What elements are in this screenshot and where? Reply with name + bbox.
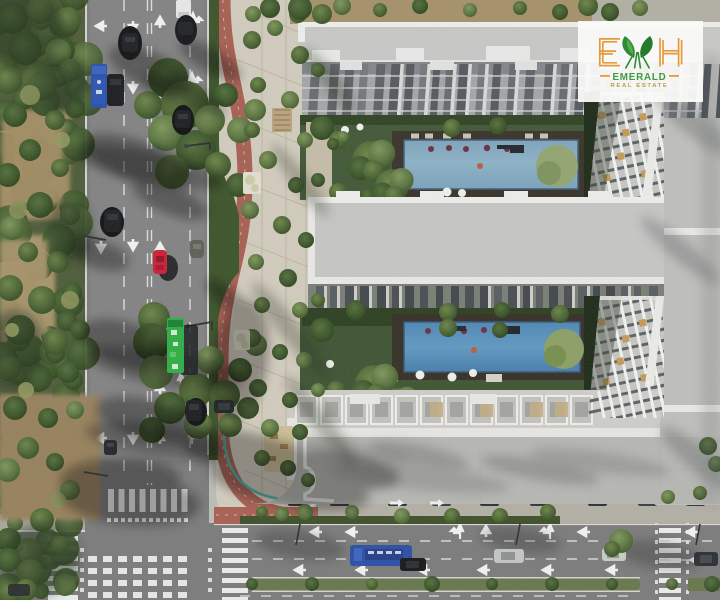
svg-text:REAL ESTATE: REAL ESTATE: [611, 83, 669, 89]
svg-text:EMERALD: EMERALD: [612, 72, 666, 83]
